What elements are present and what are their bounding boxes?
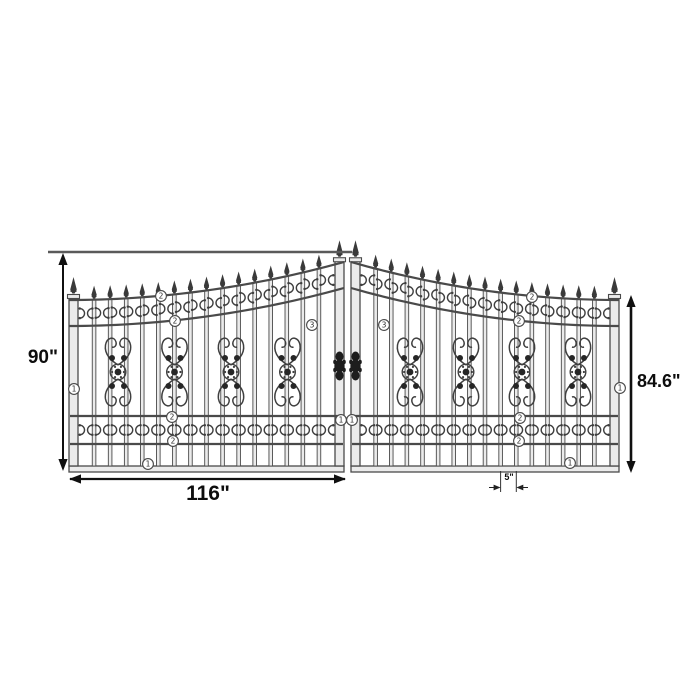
part-callouts: 1122223113222211 (69, 291, 626, 470)
left-gate-panel (68, 240, 346, 472)
callout-number: 1 (618, 384, 623, 393)
callout-number: 2 (518, 414, 523, 423)
callout-number: 3 (310, 321, 315, 330)
dimension-gate-width: 116" (168, 482, 248, 506)
callout-number: 1 (339, 416, 344, 425)
callout-number: 2 (530, 293, 535, 302)
callout-number: 2 (173, 317, 178, 326)
dimension-right-height: 84.6" (637, 371, 681, 392)
gate-diagram: 1122223113222211 90" 84.6" 116" 5" (0, 0, 700, 700)
callout-number: 1 (568, 459, 573, 468)
callout-number: 2 (171, 437, 176, 446)
callout-number: 2 (170, 413, 175, 422)
callout-number: 1 (146, 460, 151, 469)
dimension-left-height: 90" (10, 347, 58, 369)
gate-drawing: 1122223113222211 (0, 0, 700, 700)
right-gate-panel (349, 240, 620, 472)
callout-number: 3 (382, 321, 387, 330)
callout-number: 1 (72, 385, 77, 394)
callout-number: 1 (350, 416, 355, 425)
dimension-picket-gap: 5" (499, 472, 519, 482)
callout-number: 2 (517, 437, 522, 446)
callout-number: 2 (159, 292, 164, 301)
callout-number: 2 (517, 317, 522, 326)
